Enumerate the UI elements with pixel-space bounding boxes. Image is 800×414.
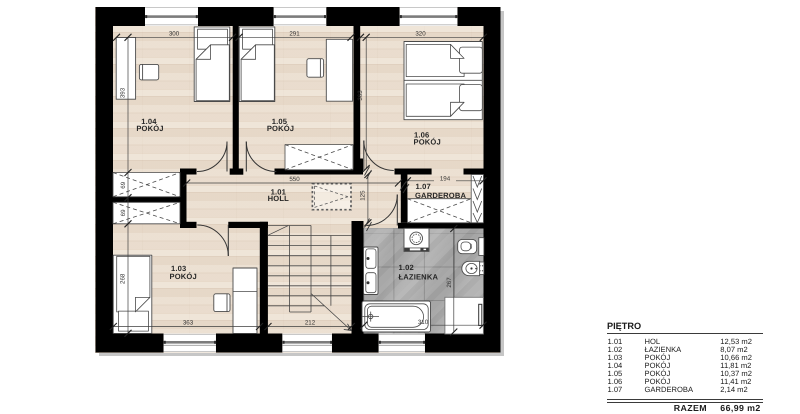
svg-text:320: 320 xyxy=(415,30,426,37)
svg-text:125: 125 xyxy=(359,190,366,201)
svg-text:POKÓJ: POKÓJ xyxy=(267,124,294,133)
svg-text:POKÓJ: POKÓJ xyxy=(136,124,163,133)
svg-text:212: 212 xyxy=(305,319,316,326)
svg-text:194: 194 xyxy=(440,176,451,183)
svg-text:POKÓJ: POKÓJ xyxy=(170,272,197,281)
svg-text:300: 300 xyxy=(169,30,180,37)
svg-text:393: 393 xyxy=(119,87,126,98)
svg-text:1.07: 1.07 xyxy=(416,182,431,191)
svg-text:363: 363 xyxy=(357,90,364,101)
svg-text:69: 69 xyxy=(120,209,127,216)
svg-text:291: 291 xyxy=(289,30,300,37)
svg-text:310: 310 xyxy=(418,319,429,326)
svg-text:1.02: 1.02 xyxy=(399,263,414,272)
svg-text:POKÓJ: POKÓJ xyxy=(414,138,441,147)
svg-text:268: 268 xyxy=(119,273,126,284)
svg-text:267: 267 xyxy=(446,277,453,288)
svg-text:550: 550 xyxy=(289,176,300,183)
svg-text:363: 363 xyxy=(183,319,194,326)
svg-text:GARDEROBA: GARDEROBA xyxy=(415,191,466,200)
svg-text:ŁAZIENKA: ŁAZIENKA xyxy=(399,272,439,281)
svg-text:HOLL: HOLL xyxy=(268,194,289,203)
svg-text:69: 69 xyxy=(120,181,127,188)
